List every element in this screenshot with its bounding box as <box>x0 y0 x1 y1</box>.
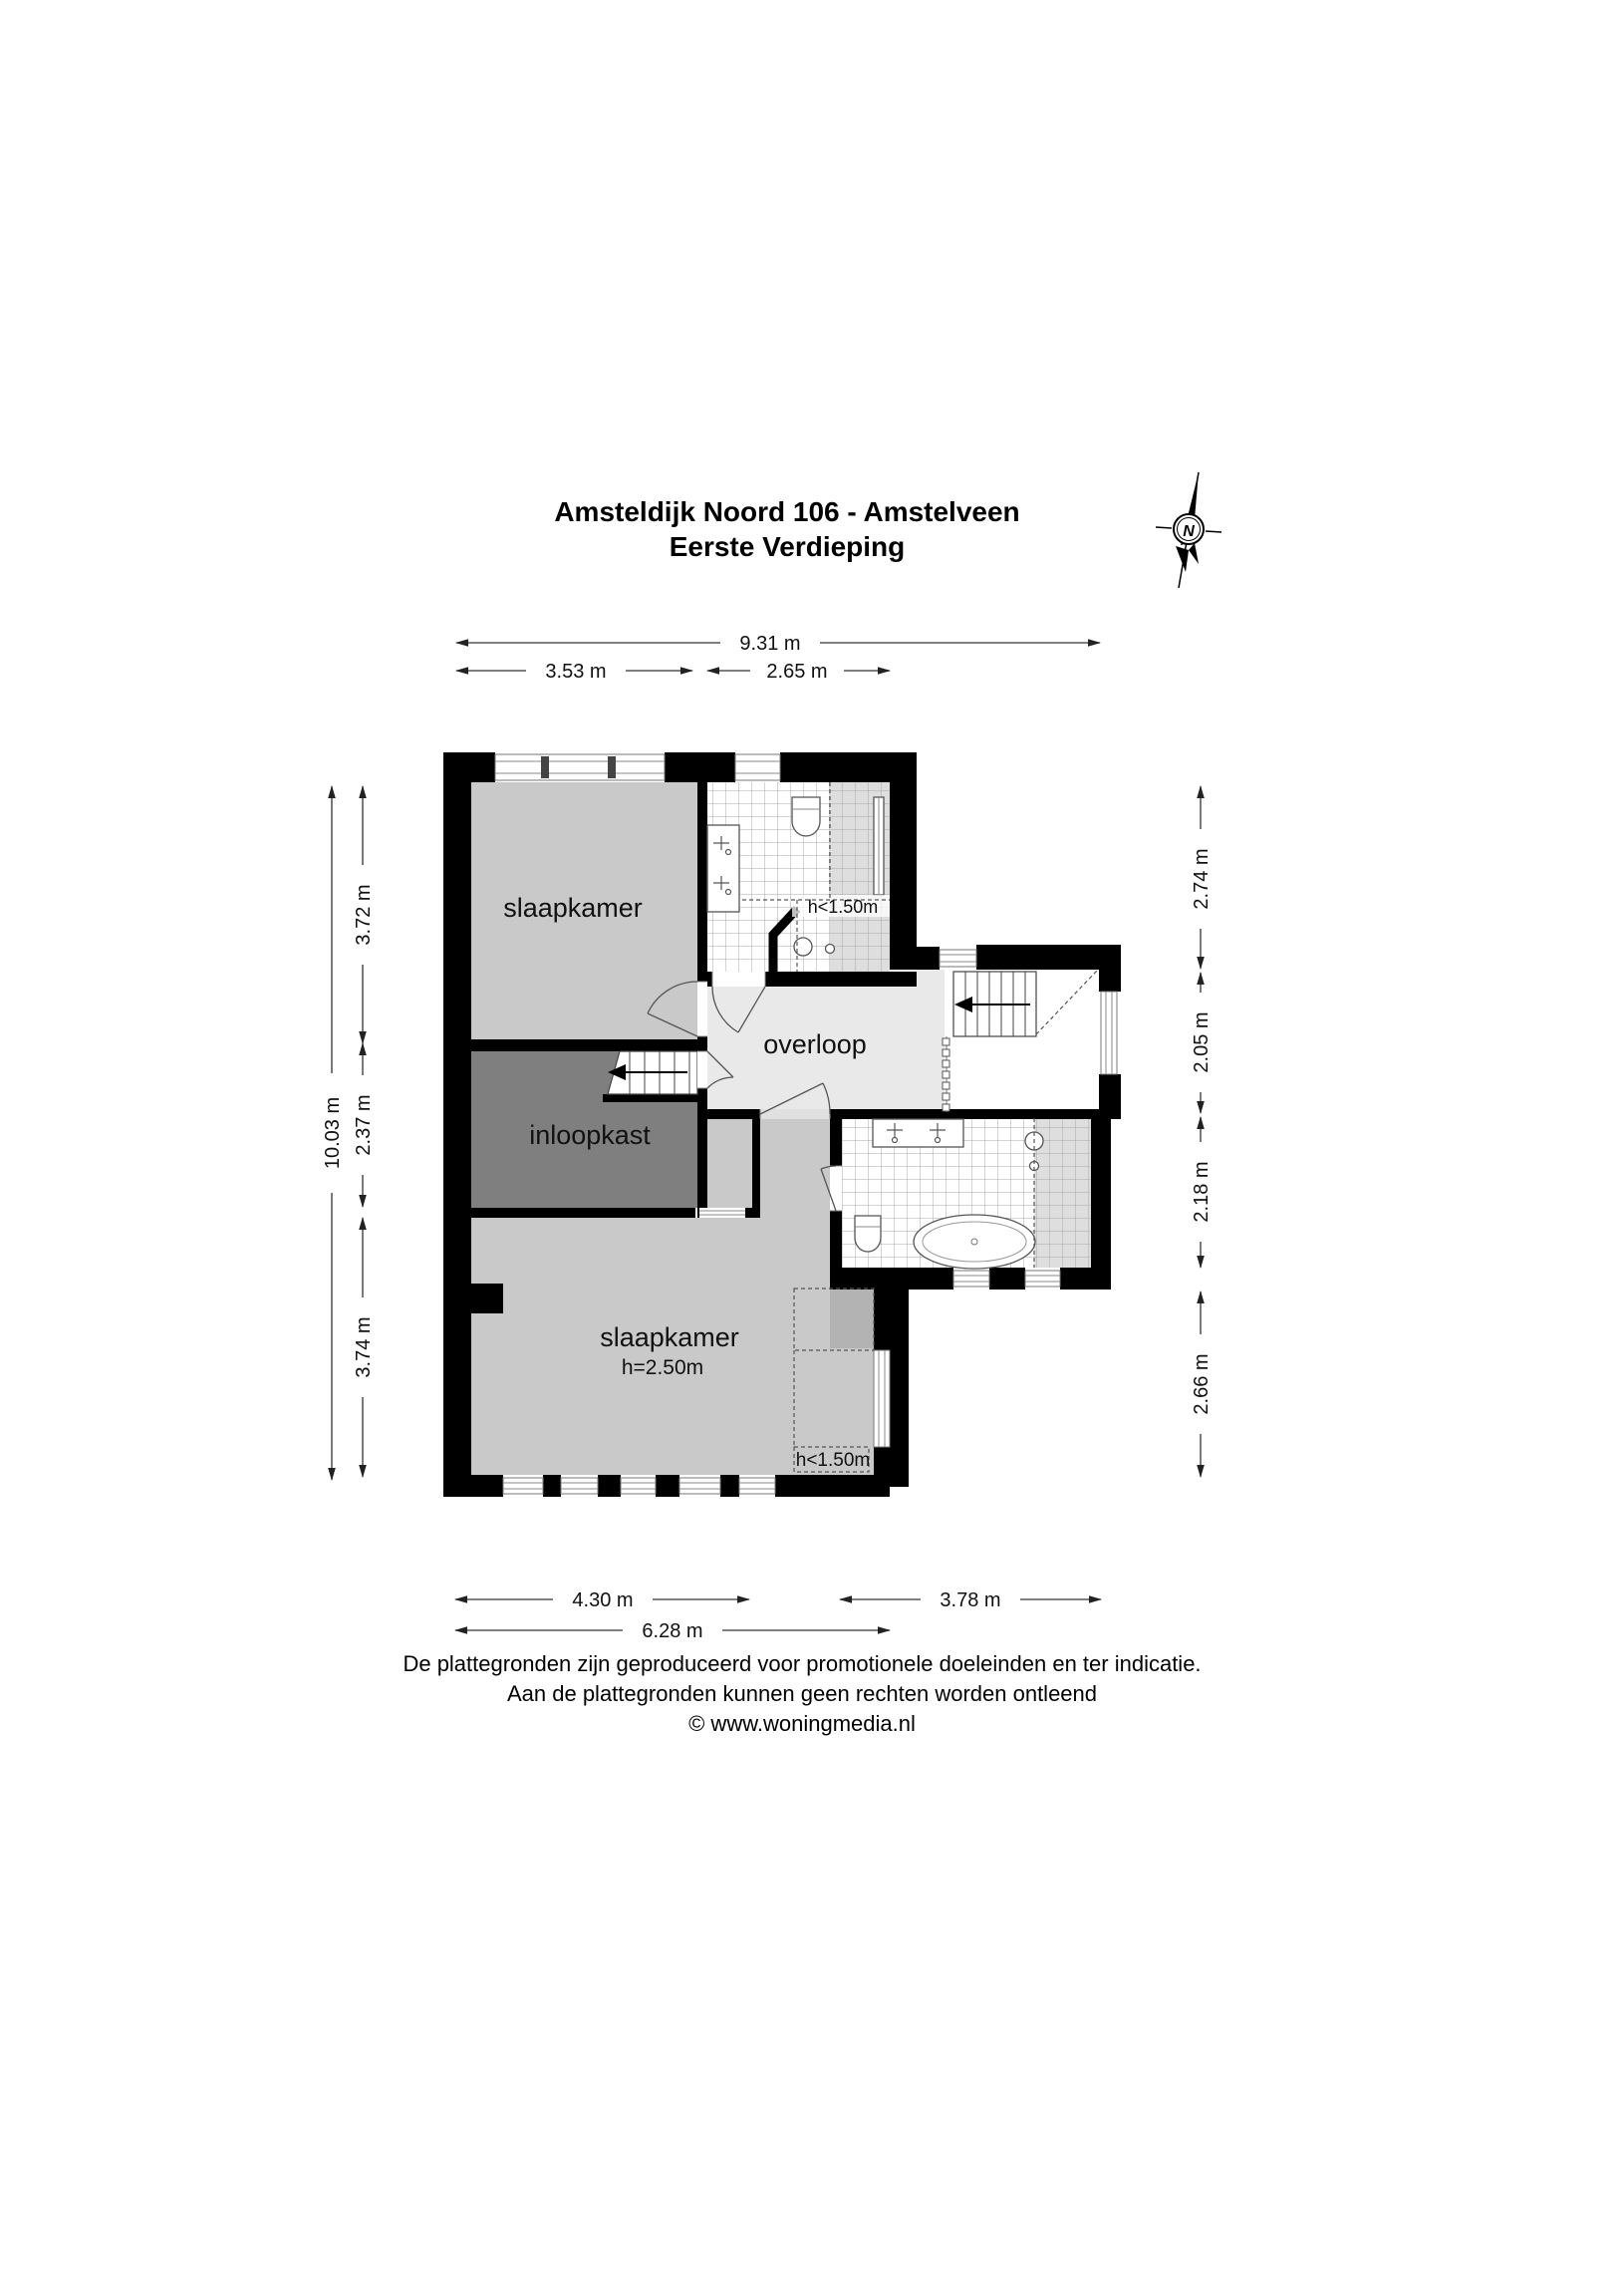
bedroom-nook-floor <box>707 1119 752 1208</box>
vanity-double-sink <box>873 1119 963 1147</box>
disclaimer-line2: Aan de plattegronden kunnen geen rechten… <box>0 1679 1604 1709</box>
shower-head <box>794 938 812 956</box>
bathtub <box>914 1215 1035 1269</box>
toilet <box>855 1216 881 1252</box>
dim-bottom-right: 3.78 m <box>840 1589 1101 1611</box>
window-bathroom-bottom-a <box>953 1271 989 1287</box>
room-label-closet: inloopkast <box>529 1120 651 1150</box>
svg-text:2.18 m: 2.18 m <box>1191 1161 1213 1222</box>
dim-right-top: 2.74 m <box>1191 786 1213 969</box>
corridor-doorway-floor <box>760 1109 830 1119</box>
low-ceiling-label-bedroom: h<1.50m <box>796 1450 870 1471</box>
dim-top-total: 9.31 m <box>456 633 1100 655</box>
dim-right-upper-middle: 2.05 m <box>1191 973 1213 1113</box>
dim-right-lower-middle: 2.18 m <box>1191 1117 1213 1268</box>
window-landing-top <box>940 950 976 967</box>
staircase-lower <box>608 1051 697 1094</box>
room-label-bedroom-top: slaapkamer <box>503 893 643 923</box>
corridor-floor <box>760 1119 830 1218</box>
page-title: Amsteldijk Noord 106 - Amstelveen Eerste… <box>0 494 1574 564</box>
dim-left-total: 10.03 m <box>322 786 344 1480</box>
svg-text:6.28 m: 6.28 m <box>642 1620 702 1642</box>
window-top-left <box>495 754 665 780</box>
window-stairwell-right <box>1101 992 1117 1074</box>
room-label-landing: overloop <box>763 1029 867 1059</box>
svg-text:2.05 m: 2.05 m <box>1191 1011 1213 1072</box>
copyright-line: © www.woningmedia.nl <box>0 1709 1604 1739</box>
floorplan-drawing: slaapkamer overloop inloopkast slaapkame… <box>0 0 1623 2296</box>
closet-opening <box>699 1208 745 1218</box>
dim-top-left: 3.53 m <box>456 661 692 683</box>
svg-text:2.66 m: 2.66 m <box>1191 1353 1213 1414</box>
svg-text:10.03 m: 10.03 m <box>322 1097 344 1169</box>
window-bedroom-right <box>874 1350 890 1447</box>
vanity-sink <box>707 825 739 912</box>
shower-drain <box>826 945 835 954</box>
svg-text:3.53 m: 3.53 m <box>545 661 606 683</box>
svg-text:3.74 m: 3.74 m <box>353 1316 375 1377</box>
dim-left-middle: 2.37 m <box>353 1043 375 1207</box>
toilet <box>792 797 820 836</box>
disclaimer: De plattegronden zijn geproduceerd voor … <box>0 1649 1604 1739</box>
svg-text:2.65 m: 2.65 m <box>766 661 827 683</box>
svg-text:9.31 m: 9.31 m <box>739 633 800 655</box>
disclaimer-line1: De plattegronden zijn geproduceerd voor … <box>0 1649 1604 1679</box>
window-top-bathroom <box>735 754 780 780</box>
staircase-upper <box>953 971 1097 1036</box>
dim-top-right: 2.65 m <box>707 661 890 683</box>
dim-left-bottom: 3.74 m <box>353 1218 375 1477</box>
title-line1: Amsteldijk Noord 106 - Amstelveen <box>0 494 1574 529</box>
svg-text:4.30 m: 4.30 m <box>572 1589 633 1611</box>
svg-text:3.72 m: 3.72 m <box>353 884 375 945</box>
dim-right-bottom: 2.66 m <box>1191 1291 1213 1477</box>
room-label-bedroom-bottom: slaapkamer <box>600 1322 739 1352</box>
floorplan-page: Amsteldijk Noord 106 - Amstelveen Eerste… <box>0 0 1623 2296</box>
ceiling-height-label: h=2.50m <box>622 1356 703 1379</box>
window-bathroom-bottom-b <box>1025 1271 1060 1287</box>
svg-text:2.37 m: 2.37 m <box>353 1094 375 1155</box>
dim-bottom-total: 6.28 m <box>455 1620 890 1642</box>
title-line2: Eerste Verdieping <box>0 529 1574 564</box>
low-ceiling-label-bathroom: h<1.50m <box>808 897 879 917</box>
svg-text:2.74 m: 2.74 m <box>1191 848 1213 909</box>
dim-bottom-left: 4.30 m <box>455 1589 749 1611</box>
svg-text:3.78 m: 3.78 m <box>940 1589 1000 1611</box>
dim-left-top: 3.72 m <box>353 786 375 1043</box>
